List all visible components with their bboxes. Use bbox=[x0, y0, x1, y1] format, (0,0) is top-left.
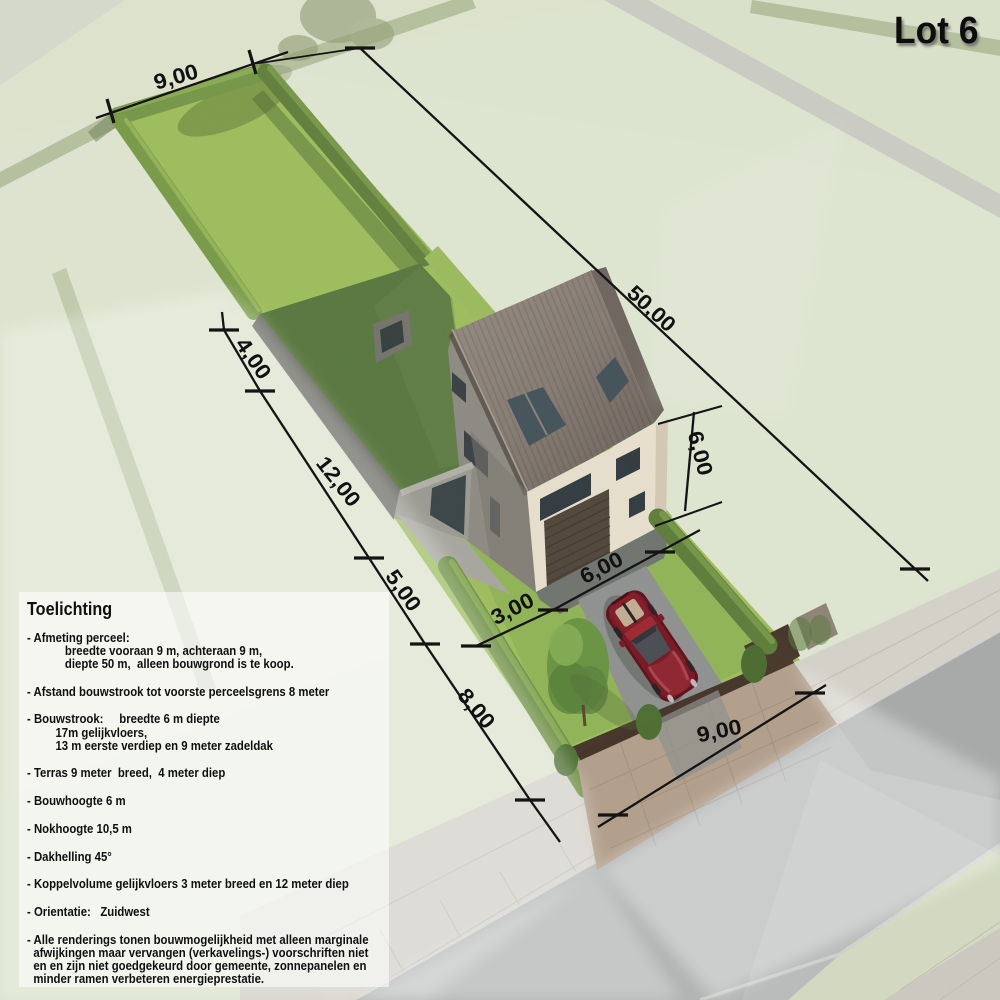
svg-text:3,00: 3,00 bbox=[487, 588, 538, 630]
svg-text:9,00: 9,00 bbox=[695, 715, 744, 748]
svg-text:9,00: 9,00 bbox=[151, 59, 201, 94]
